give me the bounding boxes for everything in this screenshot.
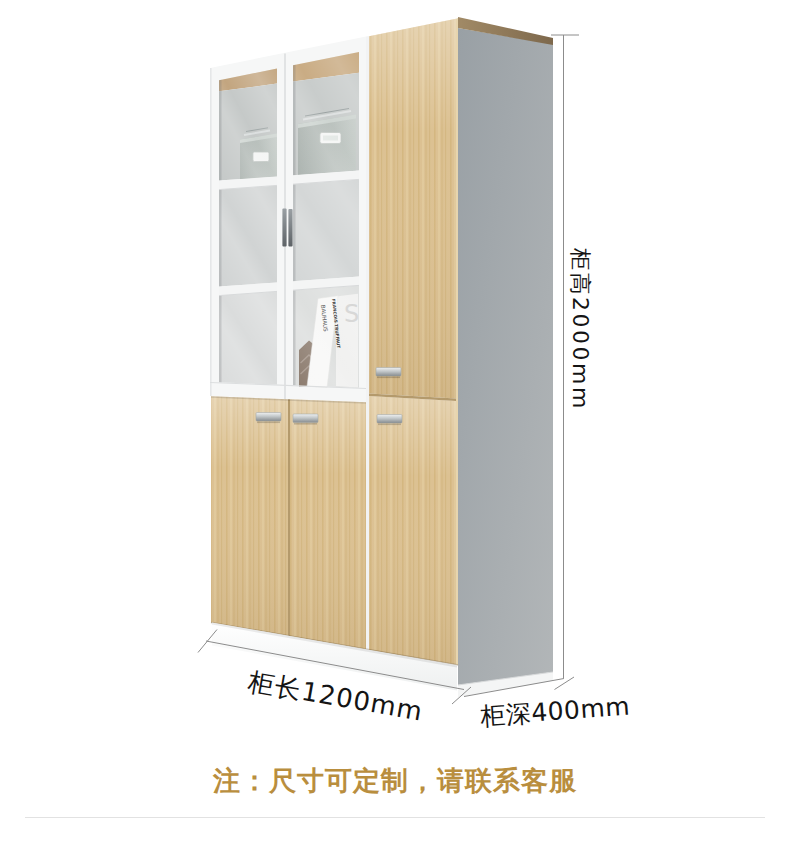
lower-door-center-shade	[290, 399, 366, 649]
depth-dimension-tick	[555, 677, 575, 690]
glass-pane	[219, 69, 277, 181]
handle-lower-left	[256, 413, 281, 424]
glass-pane	[219, 185, 277, 286]
handle-lower-center	[293, 414, 318, 425]
glass-edge-shadow	[219, 80, 222, 383]
handle-column-lower	[377, 415, 402, 426]
column-lower-door-shade	[369, 396, 456, 664]
door-seam	[288, 399, 290, 636]
glass-edge-shadow	[293, 65, 296, 386]
lower-doors	[211, 396, 366, 649]
handle-column-upper	[376, 368, 401, 379]
cabinet-render: S FRANCOIS TRUFFAUT BAUHAUS	[0, 0, 790, 856]
glass-door-handle	[282, 209, 286, 247]
lower-door-left-shade	[211, 396, 288, 635]
column-divider-strip	[366, 36, 369, 650]
section-divider	[25, 817, 765, 818]
side-panel	[458, 28, 553, 685]
glass-pane	[293, 179, 359, 281]
cabinet: S FRANCOIS TRUFFAUT BAUHAUS	[210, 17, 553, 697]
glass-pane	[219, 291, 277, 384]
column-upper-door-shade	[369, 19, 456, 399]
glass-pane	[293, 285, 359, 387]
glass-pane	[293, 52, 359, 175]
wood-column	[366, 18, 458, 665]
glass-door-handle	[288, 209, 292, 247]
depth-dimension-label: 柜深400mm	[478, 692, 631, 731]
column-corner-edge	[456, 18, 458, 665]
product-showcase: S FRANCOIS TRUFFAUT BAUHAUS	[0, 0, 790, 856]
customization-note: 注：尺寸可定制，请联系客服	[0, 764, 790, 798]
height-dimension-label: 柜高2000mm	[568, 248, 593, 411]
